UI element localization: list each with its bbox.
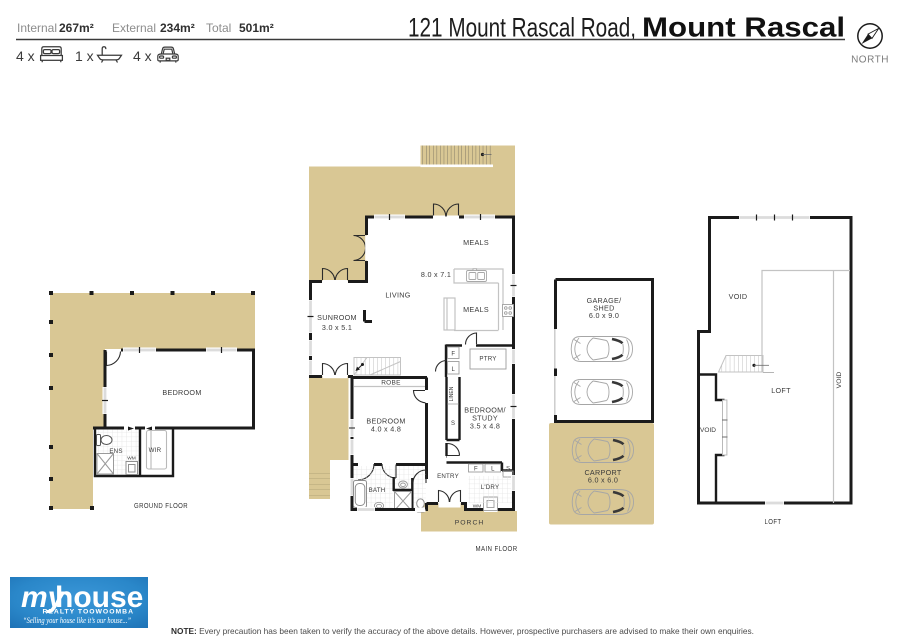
svg-text:MEALS: MEALS xyxy=(463,305,489,314)
svg-text:SUNROOM: SUNROOM xyxy=(317,313,357,322)
svg-text:NORTH: NORTH xyxy=(851,55,889,66)
svg-text:4.0 x 4.8: 4.0 x 4.8 xyxy=(371,425,401,434)
svg-text:VOID: VOID xyxy=(836,372,843,389)
svg-text:BATH: BATH xyxy=(369,487,386,494)
svg-text:WM: WM xyxy=(473,504,482,510)
svg-text:External: External xyxy=(112,21,156,35)
svg-text:PTRY: PTRY xyxy=(479,356,496,363)
svg-text:234m²: 234m² xyxy=(160,21,195,35)
svg-text:WM: WM xyxy=(127,456,136,462)
svg-text:4 x: 4 x xyxy=(16,48,35,64)
svg-text:MAIN FLOOR: MAIN FLOOR xyxy=(476,544,518,553)
svg-text:3.0 x 5.1: 3.0 x 5.1 xyxy=(322,323,352,332)
svg-text:“Selling your house like it’s: “Selling your house like it’s our house.… xyxy=(23,616,131,625)
svg-text:REALTY TOOWOOMBA: REALTY TOOWOOMBA xyxy=(42,609,134,616)
svg-text:267m²: 267m² xyxy=(59,21,94,35)
svg-text:L: L xyxy=(452,367,456,373)
svg-text:Mount Rascal: Mount Rascal xyxy=(642,12,845,43)
svg-text:S: S xyxy=(451,421,455,427)
svg-text:BEDROOM: BEDROOM xyxy=(162,388,201,397)
svg-text:6.0 x 9.0: 6.0 x 9.0 xyxy=(589,311,619,320)
svg-text:VOID: VOID xyxy=(700,427,716,434)
svg-text:LIVING: LIVING xyxy=(385,291,410,300)
svg-text:NOTE: Every precaution has bee: NOTE: Every precaution has been taken to… xyxy=(171,626,754,636)
svg-text:L'DRY: L'DRY xyxy=(481,484,500,491)
svg-text:LINEN: LINEN xyxy=(449,386,455,401)
svg-text:6.0 x 6.0: 6.0 x 6.0 xyxy=(588,476,618,485)
svg-text:4 x: 4 x xyxy=(133,48,152,64)
svg-text:PORCH: PORCH xyxy=(455,520,485,527)
svg-text:LOFT: LOFT xyxy=(765,517,782,526)
svg-text:LOFT: LOFT xyxy=(771,386,791,395)
svg-text:WIR: WIR xyxy=(149,447,162,454)
svg-text:Internal: Internal xyxy=(17,21,57,35)
svg-text:3.5 x 4.8: 3.5 x 4.8 xyxy=(470,422,500,431)
svg-text:ENTRY: ENTRY xyxy=(437,473,459,480)
svg-text:501m²: 501m² xyxy=(239,21,274,35)
svg-text:8.0 x 7.1: 8.0 x 7.1 xyxy=(421,270,451,279)
svg-text:F: F xyxy=(474,467,478,473)
svg-text:ENS: ENS xyxy=(109,448,122,455)
svg-text:MEALS: MEALS xyxy=(463,238,489,247)
svg-text:VOID: VOID xyxy=(729,292,748,301)
svg-text:ROBE: ROBE xyxy=(381,380,401,387)
svg-text:Total: Total xyxy=(206,21,231,35)
svg-text:F: F xyxy=(451,352,455,358)
svg-text:121 Mount Rascal Road,: 121 Mount Rascal Road, xyxy=(408,13,636,43)
svg-text:S: S xyxy=(506,466,510,472)
svg-text:1 x: 1 x xyxy=(75,48,94,64)
svg-text:GROUND FLOOR: GROUND FLOOR xyxy=(134,501,188,510)
